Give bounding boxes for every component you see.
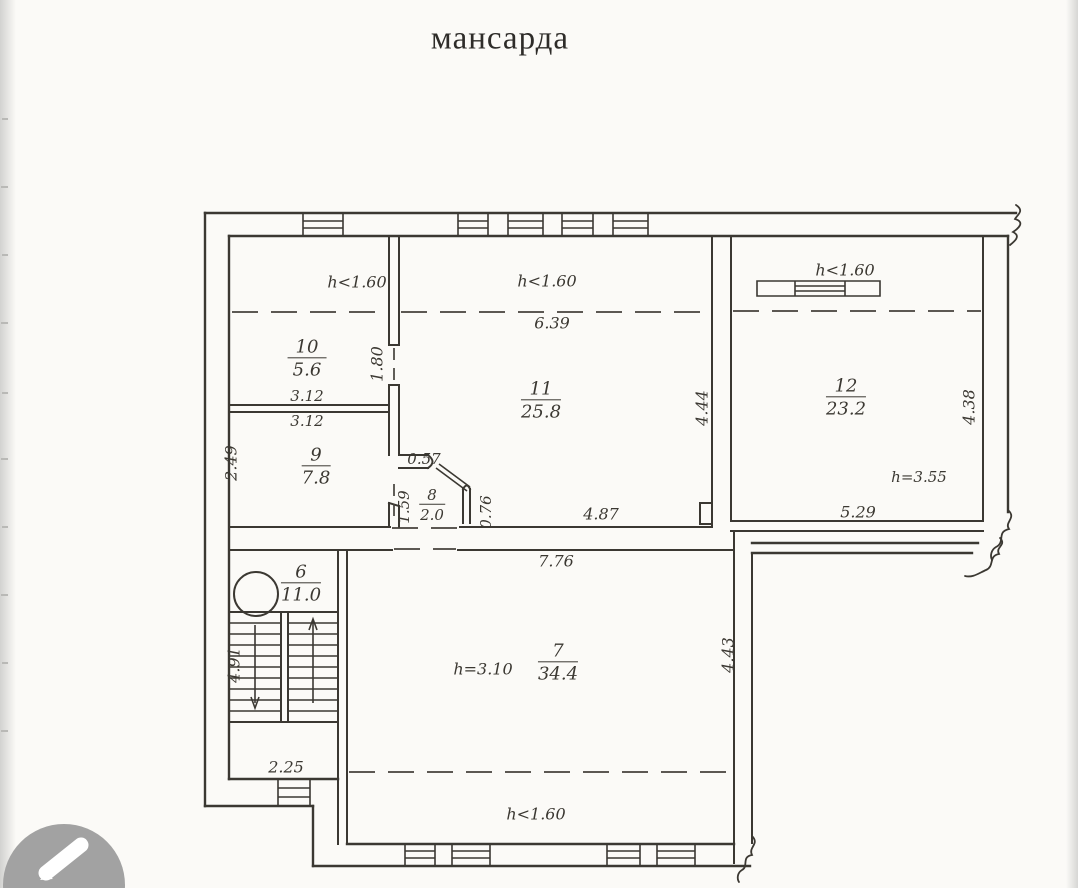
room-9-number: 9	[302, 445, 331, 466]
height-note-room7-attic: h<1.60	[506, 805, 565, 824]
edit-button[interactable]	[3, 824, 125, 888]
dim-room11-depth: 4.44	[693, 390, 712, 426]
room-6-label: 6 11.0	[281, 562, 321, 605]
screenshot-root: мансарда	[0, 0, 1078, 888]
room-12-area: 23.2	[826, 397, 866, 420]
room-11-area: 25.8	[521, 400, 561, 423]
room-7-label: 7 34.4	[538, 641, 578, 684]
dim-room11-bottom: 4.87	[583, 505, 619, 524]
height-note-room12: h<1.60	[815, 261, 874, 280]
height-note-room10: h<1.60	[327, 273, 386, 292]
pen-icon	[3, 824, 125, 888]
room-7-number: 7	[538, 641, 578, 662]
room-8-label: 8 2.0	[419, 487, 445, 524]
floor-plan-drawing	[0, 0, 1078, 888]
room-6-area: 11.0	[281, 583, 321, 606]
room-10-label: 10 5.6	[288, 337, 327, 380]
round-fixture-symbol	[234, 572, 278, 616]
dim-room10-width: 3.12	[290, 387, 323, 405]
room-9-label: 9 7.8	[302, 445, 331, 488]
height-note-room11: h<1.60	[517, 272, 576, 291]
room-10-area: 5.6	[288, 358, 327, 381]
room-9-area: 7.8	[302, 466, 331, 489]
room-12-number: 12	[826, 376, 866, 397]
dim-stairs-exit: 2.25	[268, 758, 304, 777]
dim-opening-8: 1.59	[395, 490, 413, 523]
dim-door-stub: 0.57	[407, 450, 440, 468]
room-8-number: 8	[419, 487, 445, 505]
room-12-label: 12 23.2	[826, 376, 866, 419]
dim-stairs-depth: 4.91	[225, 647, 244, 683]
room-11-label: 11 25.8	[521, 379, 561, 422]
dim-room11-width: 6.39	[534, 314, 570, 333]
room-10-number: 10	[288, 337, 327, 358]
dim-room9-width: 3.12	[290, 412, 323, 430]
dim-room9-depth: 2.49	[222, 445, 241, 481]
dim-opening-10-11: 1.80	[368, 346, 387, 382]
height-note-room12-ceiling: h=3.55	[891, 468, 947, 486]
dashed-lines	[232, 311, 981, 772]
dim-room12-depth: 4.38	[960, 389, 979, 425]
dim-room12-bottom: 5.29	[840, 503, 876, 522]
room-8-area: 2.0	[419, 504, 445, 523]
room-6-number: 6	[281, 562, 321, 583]
dim-room7-depth: 4.43	[719, 637, 738, 673]
dim-room7-top: 7.76	[538, 552, 574, 571]
room-7-area: 34.4	[538, 662, 578, 685]
dim-jamb-8: 0.76	[477, 495, 495, 528]
staircase	[229, 612, 338, 722]
height-note-room7-ceiling: h=3.10	[453, 660, 512, 679]
interior-walls	[229, 236, 983, 863]
room-11-number: 11	[521, 379, 561, 400]
dormer-window-icon	[757, 281, 880, 296]
